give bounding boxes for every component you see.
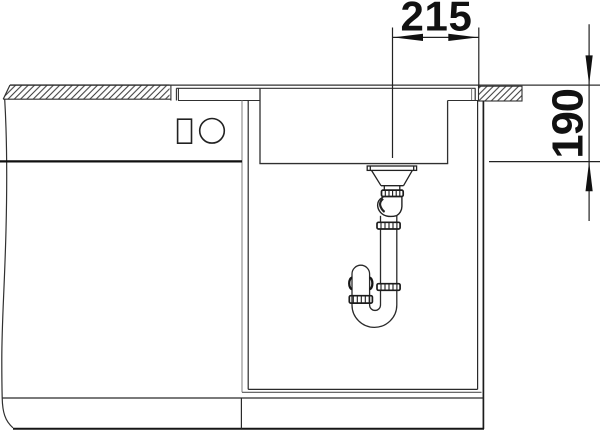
svg-text:215: 215 (401, 0, 473, 39)
svg-text:190: 190 (545, 89, 593, 159)
